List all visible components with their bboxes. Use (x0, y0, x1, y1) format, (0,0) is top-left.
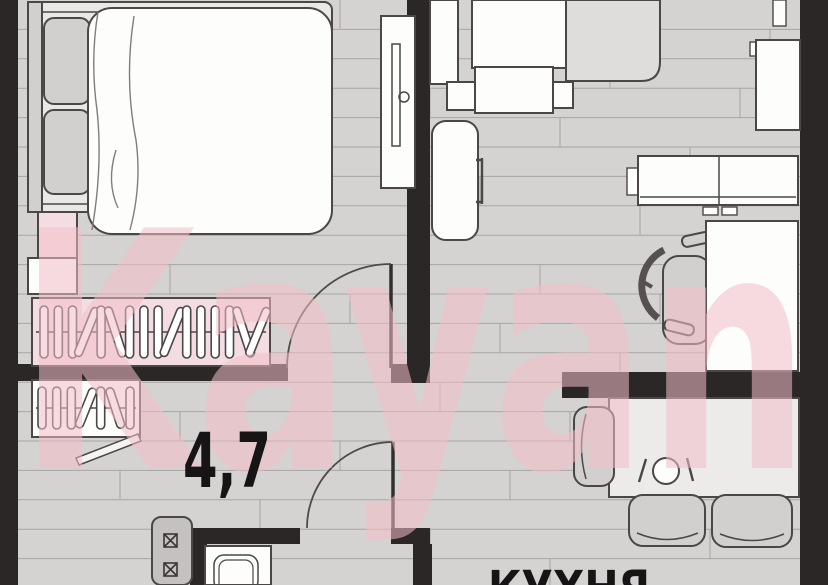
bench-armrest (447, 82, 475, 110)
bed2-duvet (566, 0, 660, 81)
floor-plan-drawing: Kayan 4,7 КУХНЯ (0, 0, 828, 585)
hallway-area-label: 4,7 (183, 416, 271, 505)
wall-shelf (773, 0, 786, 26)
watermark-text: Kayan (18, 162, 810, 546)
bench (475, 67, 553, 113)
tall-cabinet (430, 0, 458, 84)
bed2-sheet (472, 0, 568, 68)
bathroom (205, 546, 271, 585)
wall-left (0, 0, 18, 585)
floor-plan: Kayan 4,7 КУХНЯ (0, 0, 828, 585)
bed-pillow (44, 18, 90, 104)
kitchen-label: КУХНЯ (488, 561, 650, 585)
wall-cabinet (756, 40, 800, 130)
wall-bathroom-right (413, 544, 432, 585)
washer (205, 546, 271, 585)
bench-armrest (553, 82, 573, 108)
